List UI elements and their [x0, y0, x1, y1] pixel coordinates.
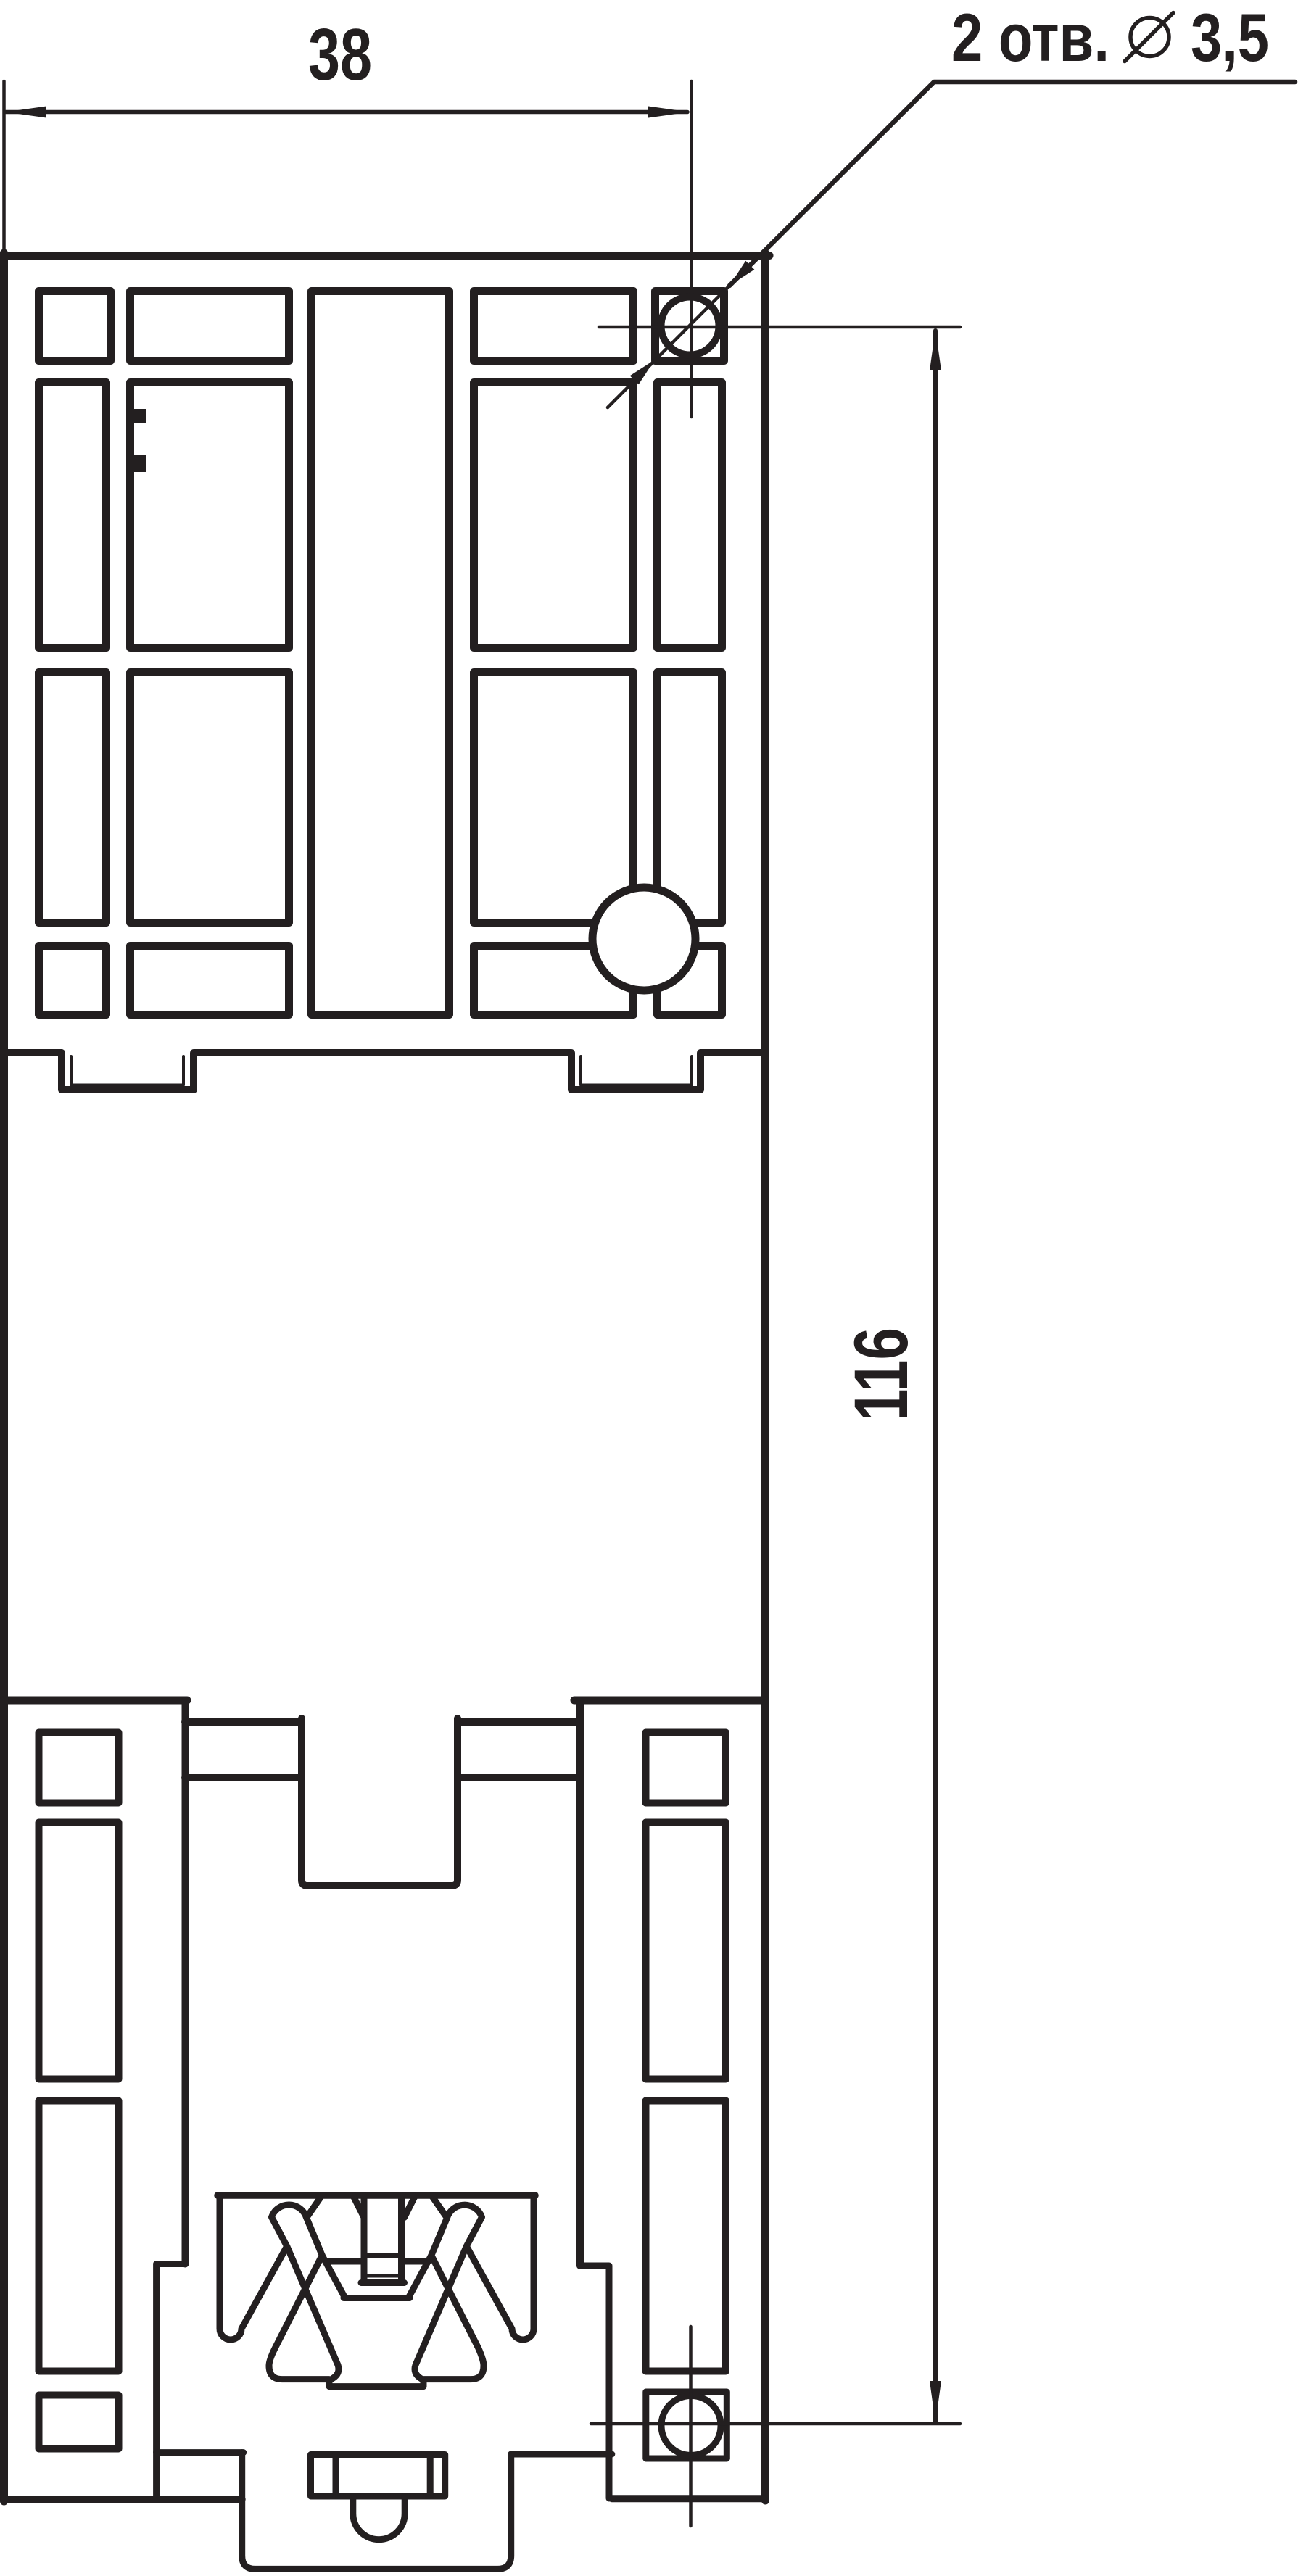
svg-text:2 отв.: 2 отв.	[951, 0, 1109, 75]
svg-text:116: 116	[839, 1328, 924, 1421]
svg-text:38: 38	[308, 15, 372, 96]
svg-text:3,5: 3,5	[1191, 0, 1269, 75]
